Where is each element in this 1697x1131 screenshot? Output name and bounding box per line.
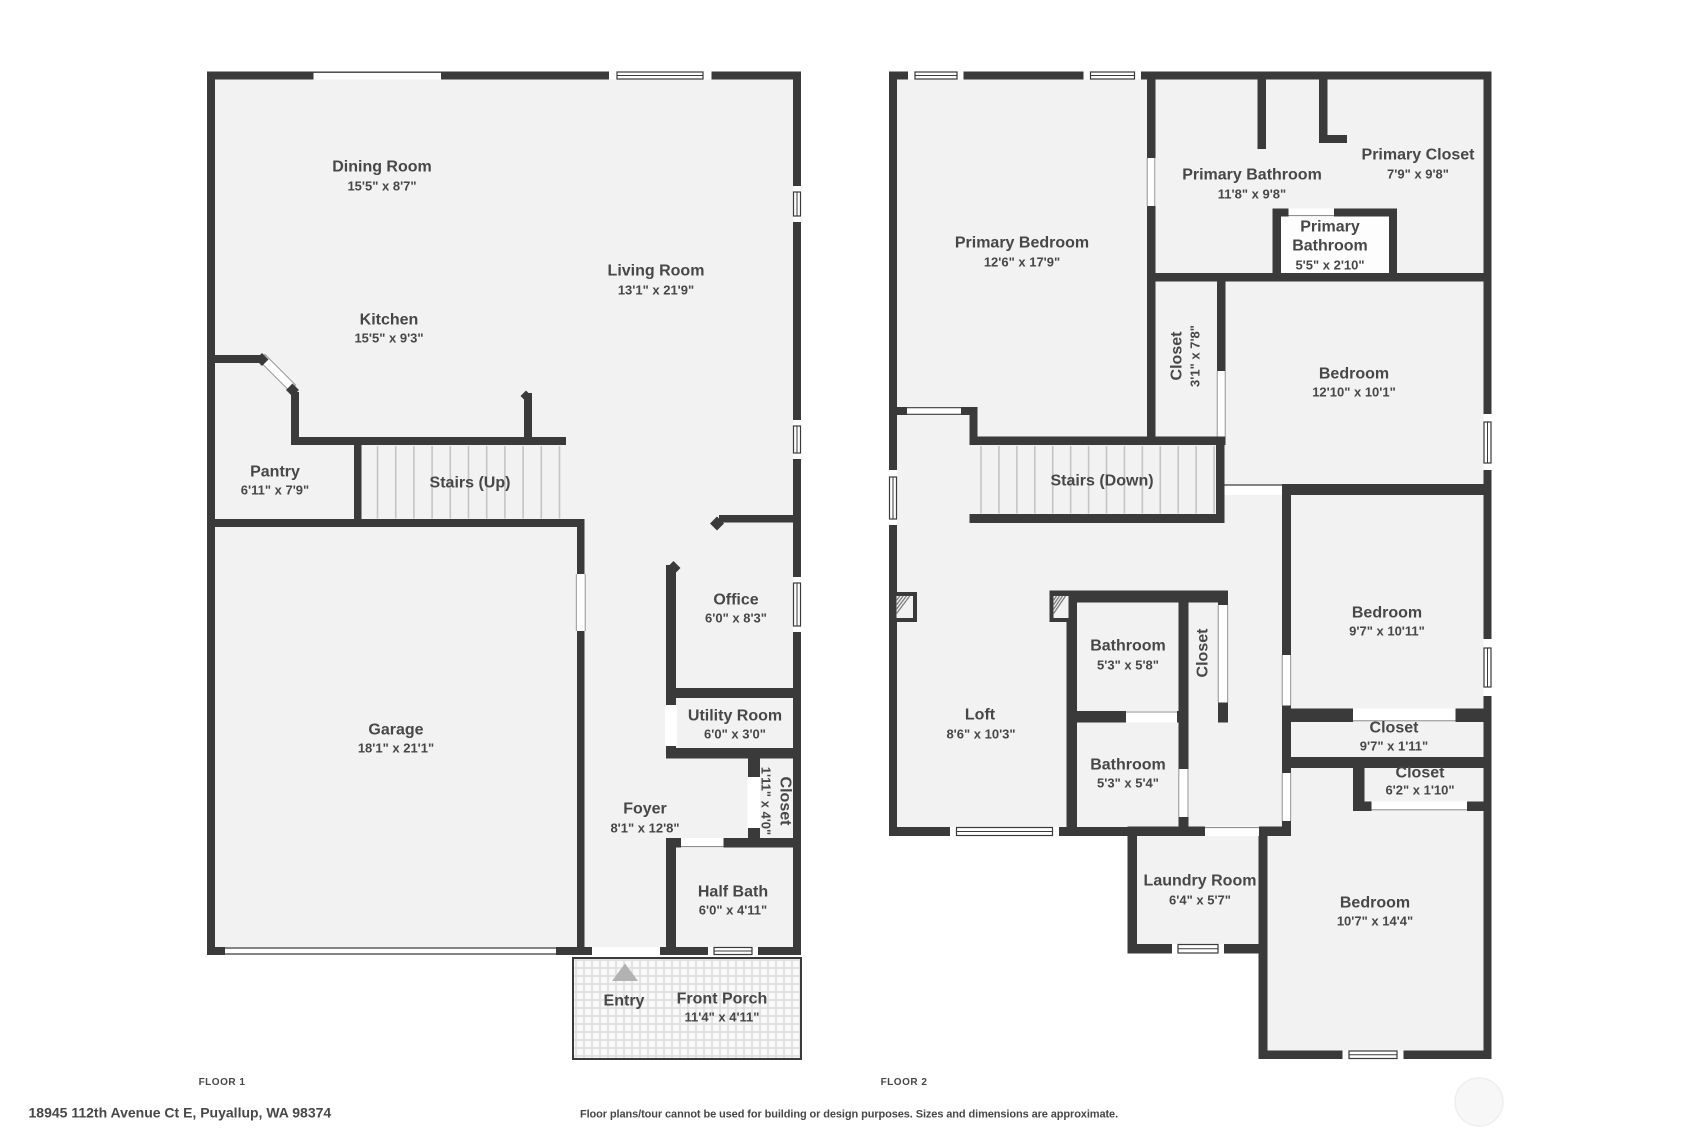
svg-text:Primary Bedroom: Primary Bedroom — [955, 235, 1089, 252]
svg-text:Kitchen: Kitchen — [360, 312, 419, 329]
svg-text:Closet: Closet — [1370, 720, 1420, 737]
svg-text:18945 112th Avenue Ct E, Puyal: 18945 112th Avenue Ct E, Puyallup, WA 98… — [29, 1105, 332, 1121]
svg-text:Primary Closet: Primary Closet — [1362, 147, 1476, 164]
svg-text:Utility Room: Utility Room — [688, 708, 782, 725]
svg-text:Closet: Closet — [1396, 765, 1446, 782]
svg-text:Bedroom: Bedroom — [1352, 605, 1422, 622]
svg-text:3'1" x 7'8": 3'1" x 7'8" — [1188, 325, 1203, 387]
svg-text:Closet: Closet — [1169, 331, 1186, 381]
svg-text:8'6" x 10'3": 8'6" x 10'3" — [946, 727, 1015, 742]
svg-text:Loft: Loft — [965, 707, 996, 724]
svg-text:Primary: Primary — [1300, 219, 1360, 236]
svg-text:Garage: Garage — [368, 722, 423, 739]
svg-text:6'2" x 1'10": 6'2" x 1'10" — [1385, 783, 1454, 798]
svg-text:Half Bath: Half Bath — [698, 884, 768, 901]
svg-text:Floor plans/tour cannot be use: Floor plans/tour cannot be used for buil… — [580, 1109, 1118, 1121]
svg-text:Stairs (Down): Stairs (Down) — [1050, 473, 1153, 490]
svg-text:12'10" x 10'1": 12'10" x 10'1" — [1312, 385, 1396, 400]
svg-text:6'11" x 7'9": 6'11" x 7'9" — [241, 483, 309, 498]
svg-text:6'0" x 8'3": 6'0" x 8'3" — [705, 611, 767, 626]
svg-text:12'6" x 17'9": 12'6" x 17'9" — [984, 255, 1060, 270]
svg-text:8'1" x 12'8": 8'1" x 12'8" — [610, 821, 679, 836]
svg-text:Closet: Closet — [1195, 628, 1212, 678]
svg-text:9'7" x 10'11": 9'7" x 10'11" — [1349, 624, 1425, 639]
svg-text:6'0" x 4'11": 6'0" x 4'11" — [699, 903, 767, 918]
svg-text:5'3" x 5'8": 5'3" x 5'8" — [1097, 658, 1159, 673]
svg-text:11'4" x 4'11": 11'4" x 4'11" — [685, 1010, 760, 1025]
svg-text:6'4" x 5'7": 6'4" x 5'7" — [1169, 893, 1231, 908]
svg-text:Front Porch: Front Porch — [677, 991, 768, 1008]
svg-text:FLOOR 1: FLOOR 1 — [199, 1077, 246, 1088]
svg-text:13'1" x 21'9": 13'1" x 21'9" — [618, 283, 694, 298]
svg-text:FLOOR 2: FLOOR 2 — [881, 1077, 928, 1088]
svg-text:10'7" x 14'4": 10'7" x 14'4" — [1337, 914, 1413, 929]
svg-text:Foyer: Foyer — [623, 801, 667, 818]
svg-text:1'11" x 4'0": 1'11" x 4'0" — [759, 767, 774, 835]
svg-text:Bathroom: Bathroom — [1090, 638, 1166, 655]
svg-text:Bathroom: Bathroom — [1090, 757, 1166, 774]
svg-text:5'3" x 5'4": 5'3" x 5'4" — [1097, 776, 1159, 791]
svg-text:15'5" x 8'7": 15'5" x 8'7" — [347, 179, 416, 194]
svg-text:7'9" x 9'8": 7'9" x 9'8" — [1387, 167, 1449, 182]
svg-text:Closet: Closet — [777, 777, 794, 827]
svg-text:Laundry Room: Laundry Room — [1144, 873, 1257, 890]
svg-text:Bedroom: Bedroom — [1340, 895, 1410, 912]
svg-text:Entry: Entry — [604, 993, 645, 1010]
svg-text:Pantry: Pantry — [250, 464, 300, 481]
svg-text:Stairs (Up): Stairs (Up) — [430, 475, 511, 492]
svg-text:Bathroom: Bathroom — [1292, 238, 1368, 255]
svg-text:Office: Office — [713, 592, 758, 609]
svg-text:Bedroom: Bedroom — [1319, 366, 1389, 383]
svg-text:11'8" x 9'8": 11'8" x 9'8" — [1218, 187, 1286, 202]
svg-text:Primary Bathroom: Primary Bathroom — [1182, 167, 1322, 184]
svg-text:5'5" x 2'10": 5'5" x 2'10" — [1295, 258, 1364, 273]
svg-text:6'0" x 3'0": 6'0" x 3'0" — [704, 727, 766, 742]
svg-text:15'5" x 9'3": 15'5" x 9'3" — [354, 331, 423, 346]
svg-text:18'1" x 21'1": 18'1" x 21'1" — [358, 741, 434, 756]
svg-text:Living Room: Living Room — [608, 263, 705, 280]
svg-text:Dining Room: Dining Room — [332, 159, 432, 176]
svg-text:9'7" x 1'11": 9'7" x 1'11" — [1360, 739, 1428, 754]
